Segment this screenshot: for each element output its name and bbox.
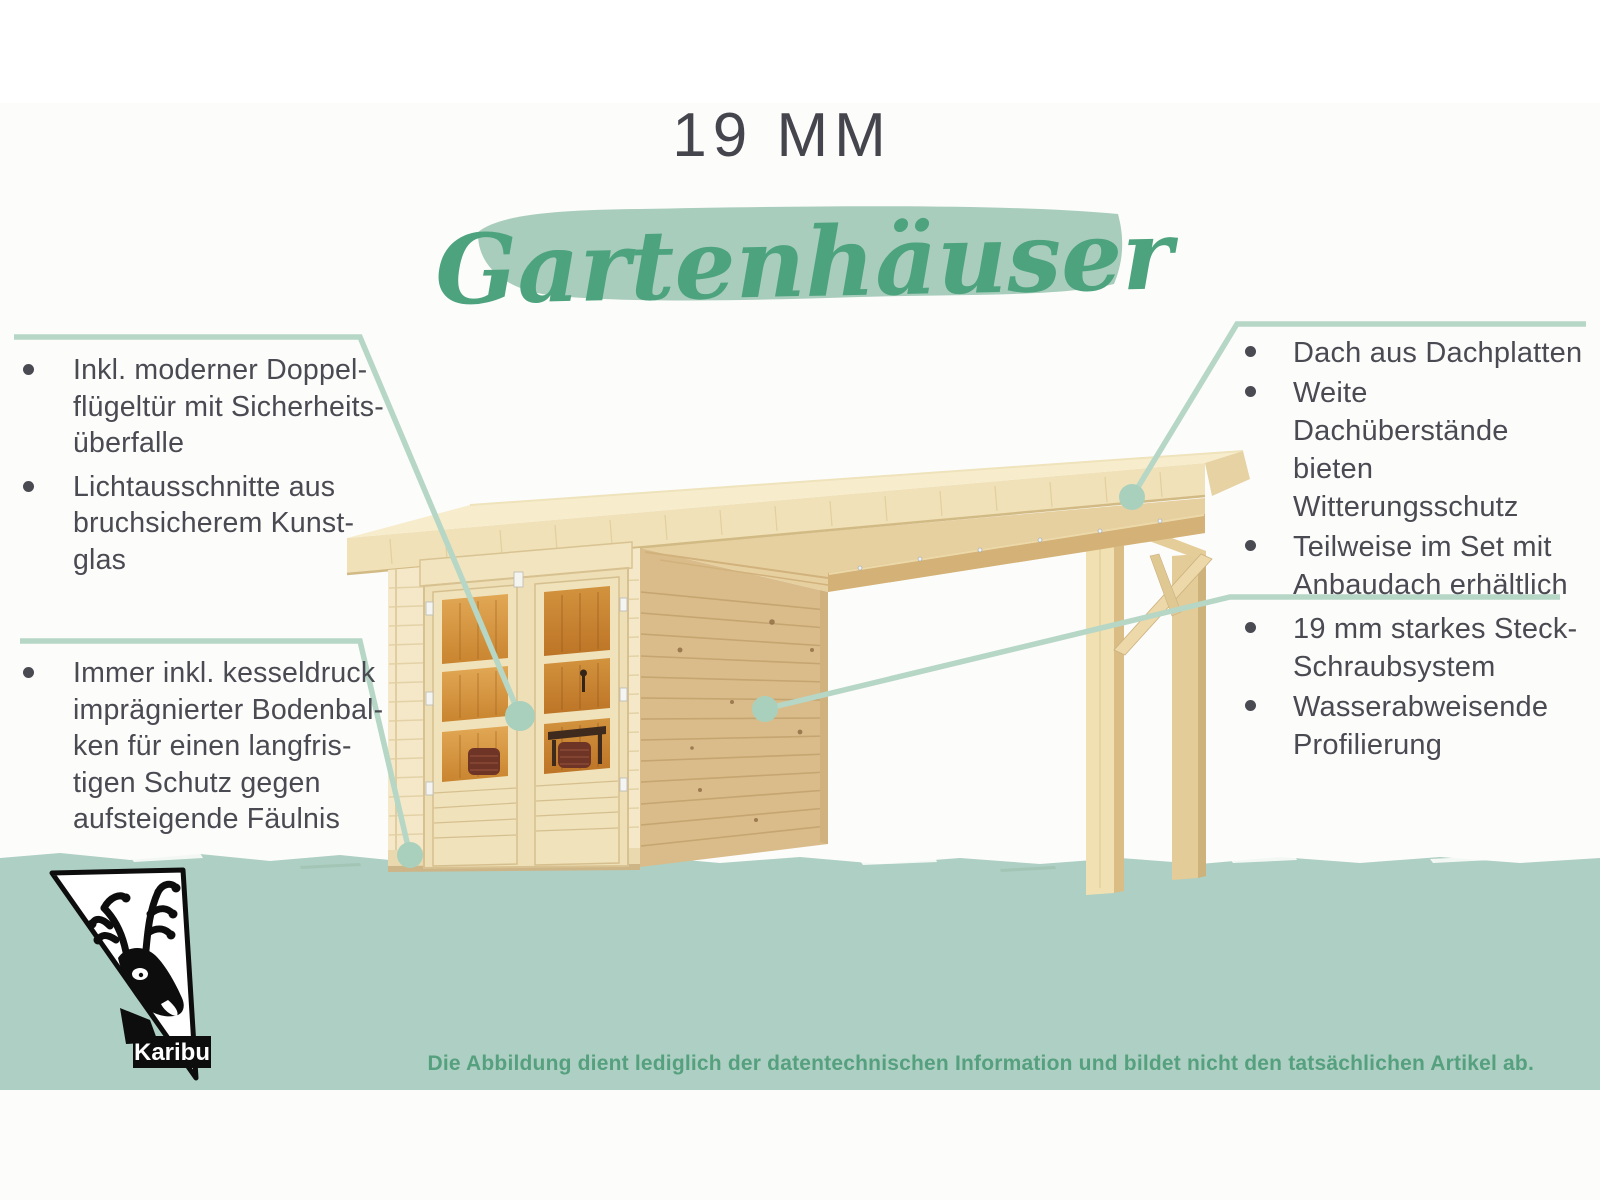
- callout-roof: Dach aus Dachplatten Weite Dachüberständ…: [1245, 334, 1590, 606]
- list-item: Teilweise im Set mit Anbaudach erhältlic…: [1245, 528, 1590, 604]
- list-item: Weite Dachüberstände bieten Witterungssc…: [1245, 374, 1590, 526]
- bullet-dot: [1245, 622, 1256, 633]
- list-item: Immer inkl. kesseldruck imprägnierter Bo…: [23, 655, 423, 838]
- list-item: Lichtausschnitte aus bruchsicherem Kunst…: [23, 469, 423, 579]
- callout-text: Wasserabweisende Profilierung: [1293, 688, 1548, 764]
- callout-text: Weite Dachüberstände bieten Witterungssc…: [1293, 374, 1590, 526]
- bullet-dot: [23, 364, 34, 375]
- bullet-dot: [23, 481, 34, 492]
- callout-wall: 19 mm starkes Steck- Schraubsystem Wasse…: [1245, 610, 1590, 766]
- disclaimer-text: Die Abbildung dient lediglich der datent…: [427, 1052, 1534, 1076]
- callout-floor: Immer inkl. kesseldruck imprägnierter Bo…: [23, 655, 423, 845]
- callout-door: Inkl. moderner Doppel- flügeltür mit Sic…: [23, 352, 423, 585]
- bullet-dot: [23, 667, 34, 678]
- list-item: Inkl. moderner Doppel- flügeltür mit Sic…: [23, 352, 423, 462]
- callout-text: 19 mm starkes Steck- Schraubsystem: [1293, 610, 1577, 686]
- bullet-dot: [1245, 700, 1256, 711]
- bullet-dot: [1245, 386, 1256, 397]
- bullet-dot: [1245, 346, 1256, 357]
- page-title: 19 MM: [0, 100, 1564, 171]
- callout-text: Immer inkl. kesseldruck imprägnierter Bo…: [73, 655, 383, 838]
- infographic-canvas: Karibu 19 MM Gartenhäuser Inkl. moderner…: [0, 0, 1600, 1200]
- list-item: Wasserabweisende Profilierung: [1245, 688, 1590, 764]
- category-title: Gartenhäuser: [0, 189, 1600, 336]
- callout-text: Dach aus Dachplatten: [1293, 334, 1582, 372]
- callout-text: Teilweise im Set mit Anbaudach erhältlic…: [1293, 528, 1568, 604]
- list-item: 19 mm starkes Steck- Schraubsystem: [1245, 610, 1590, 686]
- list-item: Dach aus Dachplatten: [1245, 334, 1590, 372]
- callout-text: Lichtausschnitte aus bruchsicherem Kunst…: [73, 469, 354, 579]
- callout-text: Inkl. moderner Doppel- flügeltür mit Sic…: [73, 352, 384, 462]
- text-layer: 19 MM Gartenhäuser Inkl. moderner Doppel…: [0, 0, 1600, 1200]
- bullet-dot: [1245, 540, 1256, 551]
